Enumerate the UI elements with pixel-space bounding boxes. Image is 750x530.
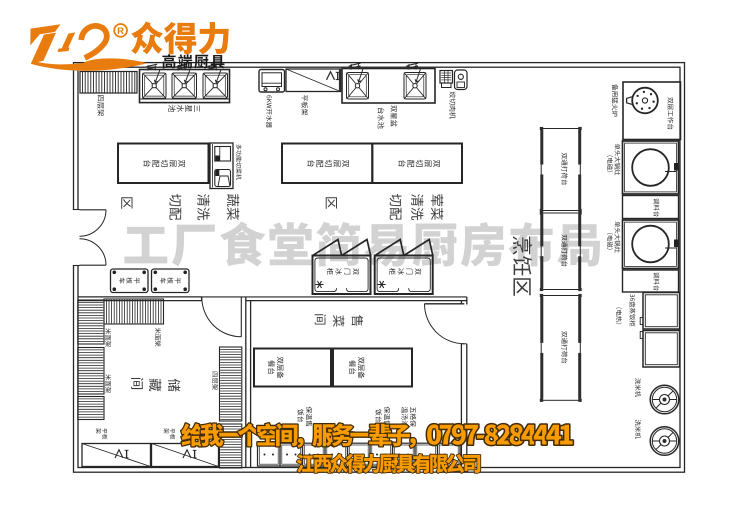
svg-text:R: R [117, 26, 124, 37]
